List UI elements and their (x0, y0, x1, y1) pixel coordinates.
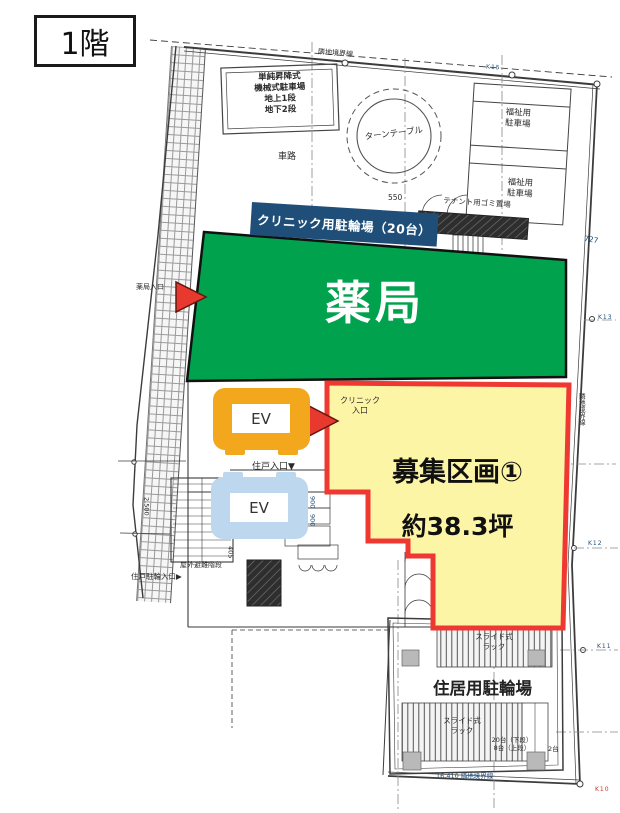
survey-point-k10: K10 (595, 786, 610, 794)
outdoor-escape-stairs-label: 屋外避難階段 (180, 561, 222, 570)
mechanical-parking-label: 単純昇降式 機械式駐車場 地上1段 地下2段 (224, 70, 335, 117)
shaft-hatch-block (247, 560, 281, 606)
driveway-label: 車路 (278, 152, 296, 164)
clinic-bicycle-banner-label: クリニック用駐輪場（20台） (257, 209, 432, 239)
dim-900b: 900 (308, 514, 316, 526)
dim-405: 405 (226, 546, 234, 558)
slide-rack-upper-label: スライド式 ラック (468, 632, 520, 651)
unit-bicycle-entrance-label: 住戸駐輪入口▶ (131, 572, 182, 582)
elevator-lower: EV (211, 477, 308, 539)
survey-point-k13: K13 (598, 314, 613, 322)
survey-point-k11: K11 (597, 643, 612, 651)
rack-capacity-label: 20台（下段） 8台（上段） (480, 736, 544, 753)
pharmacy-entrance-label: 薬局入口 (136, 283, 164, 292)
survey-point-k15: K15 (486, 64, 501, 73)
dim-2500: 2,500 (142, 497, 150, 516)
elevator-guide-tab (225, 446, 245, 455)
boundary-bottom-label: 16,410 隣地境界線 (436, 772, 493, 780)
rack-capacity-side-label: 2台 (548, 745, 559, 753)
vacant-unit-title: 募集区画① (330, 456, 585, 491)
elevator-upper-label: EV (232, 404, 290, 433)
clinic-entrance-label: クリニック 入口 (338, 396, 382, 416)
vacant-unit-area: 約38.3坪 (330, 511, 585, 543)
elevator-guide-tab (276, 472, 296, 481)
pharmacy-zone-label: 薬局 (280, 274, 470, 333)
elevator-guide-tab (223, 472, 243, 481)
slide-rack-lower-label: スライド式 ラック (436, 716, 488, 735)
residential-bicycle-label: 住居用駐輪場 (410, 678, 555, 699)
floor-plan-page: 1階 クリニック用駐輪場（20台） EV EV 薬局 募集区画① 約38.3坪 … (0, 0, 620, 813)
dim-550: 550 (388, 193, 402, 203)
floor-badge-label: 1階 (60, 19, 109, 63)
floor-badge: 1階 (34, 15, 136, 67)
dim-900a: 900 (308, 496, 316, 508)
boundary-right-label: 隣地境界線 (577, 393, 585, 426)
elevator-lower-label: EV (230, 493, 288, 522)
elevator-guide-tab (278, 446, 298, 455)
elevator-upper: EV (213, 388, 310, 450)
survey-point-k12: K12 (588, 540, 603, 548)
